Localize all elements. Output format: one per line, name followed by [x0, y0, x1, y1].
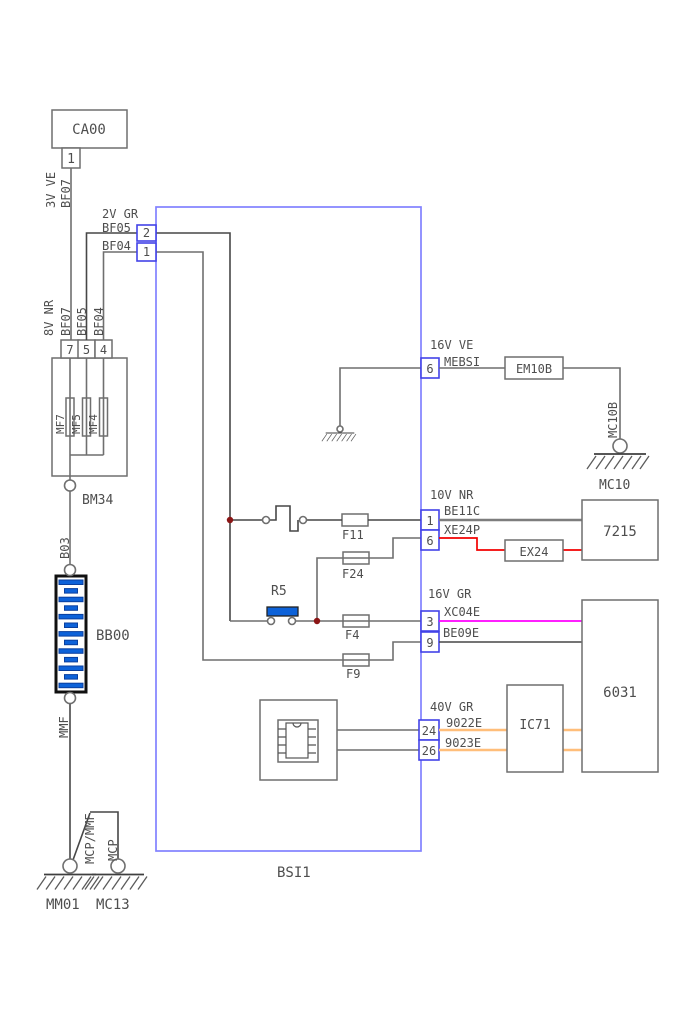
fuse-mf4-label: MF4 — [87, 414, 100, 434]
gauge-8v-nr: 8V NR — [42, 299, 56, 336]
switch-contact — [263, 517, 307, 524]
bsi-wire-f11-switch — [230, 506, 421, 531]
battery-bb00 — [56, 576, 86, 692]
gauge-16v-gr: 16V GR — [428, 587, 472, 601]
wire-label-b03: B03 — [58, 537, 72, 559]
wire-label-be11c: BE11C — [444, 504, 480, 518]
ca00-pin-label: 1 — [67, 152, 75, 167]
wire-label-bf04-left: BF04 — [102, 239, 131, 253]
bsi-pin-be11c-label: 1 — [426, 514, 433, 528]
fuse-f11-label: F11 — [342, 528, 364, 542]
fuse-f24-label: F24 — [342, 567, 364, 581]
wire-label-bf07: BF07 — [59, 307, 73, 336]
wire-bf04 — [104, 252, 138, 340]
bsi-pin-xc04e-label: 3 — [426, 615, 433, 629]
gauge-10v-nr: 10V NR — [430, 488, 474, 502]
em10b-label: EM10B — [516, 362, 552, 376]
wire-label-be09e: BE09E — [443, 626, 479, 640]
bsi-pin-9022-label: 24 — [422, 724, 436, 738]
battery-bottom-terminal — [65, 693, 76, 704]
ground-mc10-label: MC10 — [599, 478, 630, 493]
schematic-canvas: CA00 1 3V VE BF07 8V NR BF07 BF05 BF04 7… — [0, 0, 700, 1020]
relay-r5 — [267, 607, 298, 625]
fuse-f9-label: F9 — [346, 667, 360, 681]
bsi1-label: BSI1 — [277, 865, 311, 881]
relay-r5-label: R5 — [271, 584, 287, 599]
ic71-label: IC71 — [519, 718, 550, 733]
wire-label-xc04e: XC04E — [444, 605, 480, 619]
ground-mc10 — [587, 439, 649, 469]
wire-label-mc10b: MC10B — [606, 402, 620, 438]
wire-label-9023e: 9023E — [445, 736, 481, 750]
connector-bm34-label: BM34 — [82, 493, 113, 508]
wire-label-bf04: BF04 — [92, 307, 106, 336]
fusebox-pin7: 7 — [66, 343, 73, 357]
ic-module-wires — [337, 730, 419, 750]
wiring-diagram: CA00 1 3V VE BF07 8V NR BF07 BF05 BF04 7… — [0, 0, 700, 1020]
fusebox-pin4: 4 — [100, 343, 107, 357]
fuse-f4-label: F4 — [345, 628, 359, 642]
wire-label-mmf: MMF — [57, 716, 71, 738]
wire-label-9022e: 9022E — [446, 716, 482, 730]
bsi1-unit: BSI1 2V GR BF05 BF04 2 1 R5 F11 F24 F4 F… — [102, 207, 482, 881]
bsi-wire-f9 — [156, 252, 421, 660]
wire-label-xe24p: XE24P — [444, 523, 480, 537]
fuse-f11-symbol — [342, 514, 368, 526]
bsi-pin-mebsi-label: 6 — [426, 362, 433, 376]
gauge-3v-ve: 3V VE — [44, 172, 58, 208]
ground-mc13-label: MC13 — [96, 897, 130, 913]
wire-label-bf05: BF05 — [75, 307, 89, 336]
bsi-pin1-label: 1 — [143, 245, 150, 259]
ex24-label: EX24 — [520, 545, 549, 559]
bsi-pin-be09e-label: 9 — [426, 636, 433, 650]
relay-r5-coil — [267, 607, 298, 616]
bsi-pin-9023-label: 26 — [422, 744, 436, 758]
unit-7215-label: 7215 — [603, 524, 637, 540]
bsi-pin2-label: 2 — [143, 226, 150, 240]
fuse-mf7-label: MF7 — [54, 414, 67, 434]
wire-label-bf07-top: BF07 — [59, 179, 73, 208]
wire-label-bf05-left: BF05 — [102, 221, 131, 235]
junction-dot-1 — [227, 517, 233, 523]
connector-bm34 — [65, 480, 76, 491]
bsi-internal-ground — [322, 426, 356, 441]
bsi-bus-bf05 — [156, 233, 230, 621]
ca00-label: CA00 — [72, 122, 106, 138]
unit-6031-label: 6031 — [603, 685, 637, 701]
gauge-40v-gr: 40V GR — [430, 700, 474, 714]
wire-label-mcp-mmf: MCP/MMF — [83, 813, 97, 864]
wire-label-mcp: MCP — [106, 839, 120, 861]
gauge-16v-ve: 16V VE — [430, 338, 473, 352]
fuse-mf5-label: MF5 — [70, 414, 83, 434]
bsi-pin-xe24p-label: 6 — [426, 534, 433, 548]
bsi-wire-mebsi-ground — [340, 368, 421, 426]
bsi-wire-f24 — [317, 538, 421, 621]
ground-symbol-mc10 — [587, 454, 649, 469]
ground-symbol-mc13 — [85, 875, 147, 890]
fusebox-pin5: 5 — [83, 343, 90, 357]
battery-label: BB00 — [96, 628, 130, 644]
ic-module-inner — [278, 720, 318, 762]
ground-mm01-label: MM01 — [46, 897, 80, 913]
gauge-2v-gr: 2V GR — [102, 207, 139, 221]
battery-top-terminal — [65, 565, 76, 576]
bsi-ic-module — [260, 700, 419, 780]
junction-dot-2 — [314, 618, 320, 624]
wire-label-mebsi: MEBSI — [444, 355, 480, 369]
